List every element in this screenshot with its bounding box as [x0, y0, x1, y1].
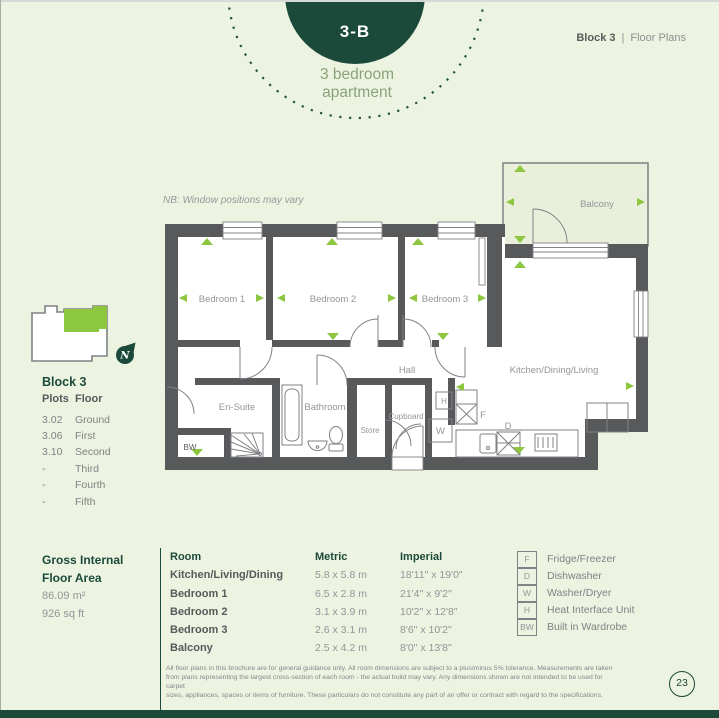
table-row: Bedroom 2 3.1 x 3.9 m 10'2" x 12'8" [170, 606, 505, 624]
breadcrumb-block: Block 3 [576, 32, 615, 44]
legend-item: H Heat Interface Unit [517, 602, 635, 619]
plots-header: Plots Floor [42, 391, 111, 407]
header-room: Room [170, 551, 315, 563]
balcony-area [503, 163, 648, 246]
floor-col-header: Floor [75, 393, 103, 405]
disclaimer-line3: sizes, appliances, spaces or items of fu… [166, 691, 616, 700]
appliance-legend: F Fridge/Freezer D Dishwasher W Washer/D… [517, 551, 635, 636]
legend-key-box: W [517, 585, 537, 602]
top-edge-line [0, 0, 719, 2]
area-metric: 86.09 m² [42, 587, 123, 605]
legend-key-box: F [517, 551, 537, 568]
label-bw: BW [184, 443, 197, 452]
table-header-row: Room Metric Imperial [170, 551, 505, 569]
breadcrumb-divider: | [622, 32, 625, 44]
label-bedroom2: Bedroom 2 [310, 294, 356, 305]
gross-area-block: Gross Internal Floor Area 86.09 m² 926 s… [42, 551, 123, 623]
plot-row: 3.06First [42, 428, 111, 444]
breadcrumb: Block 3|Floor Plans [576, 32, 686, 44]
label-f: F [480, 410, 486, 421]
plot-row: -Fourth [42, 477, 111, 493]
brochure-page: 3-B 3 bedroom apartment Block 3|Floor Pl… [0, 0, 719, 718]
label-balcony: Balcony [580, 199, 614, 210]
label-ensuite: En-Suite [219, 402, 255, 413]
block-title: Block 3 [42, 375, 86, 389]
legend-key-box: BW [517, 619, 537, 636]
table-row: Bedroom 1 6.5 x 2.8 m 21'4" x 9'2" [170, 588, 505, 606]
table-row: Bedroom 3 2.6 x 3.1 m 8'6" x 10'2" [170, 624, 505, 642]
table-row: Kitchen/Living/Dining 5.8 x 5.8 m 18'11"… [170, 569, 505, 587]
plot-row: 3.10Second [42, 444, 111, 460]
floor-plan: Bedroom 1 Bedroom 2 Bedroom 3 Hall Kitch… [160, 153, 656, 480]
label-w: W [436, 426, 445, 437]
site-plan: N [25, 298, 145, 370]
area-title-line2: Floor Area [42, 569, 123, 587]
plot-row: -Third [42, 461, 111, 477]
label-bedroom1: Bedroom 1 [199, 294, 245, 305]
area-imperial: 926 sq ft [42, 605, 123, 623]
label-d: D [505, 421, 512, 432]
block-highlight [64, 306, 107, 332]
disclaimer-line1: All floor plans in this brochure are for… [166, 664, 616, 673]
left-edge-line [0, 0, 1, 718]
area-title-line1: Gross Internal [42, 551, 123, 569]
table-row: Balcony 2.5 x 4.2 m 8'0" x 13'8" [170, 642, 505, 660]
label-store: Store [360, 426, 380, 435]
legend-item: BW Built in Wardrobe [517, 619, 635, 636]
label-kitchen: Kitchen/Dining/Living [510, 365, 599, 376]
unit-type-line2: apartment [277, 84, 437, 102]
plot-row: 3.02Ground [42, 411, 111, 427]
plots-table: Plots Floor 3.02Ground 3.06First 3.10Sec… [42, 391, 111, 510]
legend-item: D Dishwasher [517, 568, 635, 585]
breadcrumb-section: Floor Plans [630, 32, 686, 44]
room-dimensions-table: Room Metric Imperial Kitchen/Living/Dini… [170, 551, 505, 661]
footer-bar [0, 710, 719, 718]
label-cupboard: Cupboard [388, 412, 423, 421]
header-metric: Metric [315, 551, 400, 563]
legend-item: F Fridge/Freezer [517, 551, 635, 568]
north-compass-icon: N [116, 343, 136, 365]
label-bathroom: Bathroom [304, 402, 345, 413]
plots-col-header: Plots [42, 393, 75, 405]
entrance-opening [392, 457, 423, 470]
label-hall: Hall [399, 365, 415, 376]
header-imperial: Imperial [400, 551, 505, 563]
label-h: H [441, 397, 447, 406]
svg-text:N: N [119, 351, 130, 362]
legend-item: W Washer/Dryer [517, 585, 635, 602]
legend-key-box: H [517, 602, 537, 619]
label-bedroom3: Bedroom 3 [422, 294, 468, 305]
legend-key-box: D [517, 568, 537, 585]
unit-type: 3 bedroom apartment [277, 66, 437, 101]
plot-row: -Fifth [42, 493, 111, 509]
disclaimer-text: All floor plans in this brochure are for… [166, 664, 616, 700]
section-divider [160, 548, 161, 712]
page-number-badge: 23 [669, 671, 695, 697]
unit-code: 3-B [295, 22, 415, 42]
unit-type-line1: 3 bedroom [277, 66, 437, 84]
duct [479, 238, 485, 285]
disclaimer-line2: from plans representing the largest cros… [166, 673, 616, 691]
